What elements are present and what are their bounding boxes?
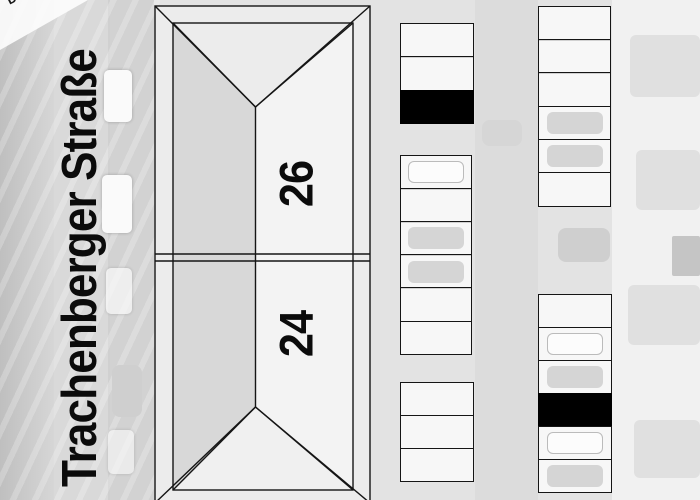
parked-car-shape	[112, 365, 142, 417]
parking-stall	[400, 188, 472, 223]
parking-stall	[400, 321, 472, 356]
hip-line	[173, 407, 256, 490]
stall-row-b-bottom	[538, 294, 612, 493]
roof-south-hip	[173, 407, 353, 490]
parking-stall	[538, 327, 612, 361]
parking-stall-occupied	[400, 90, 474, 125]
roof-west-plane	[173, 23, 256, 490]
hip-line	[256, 6, 371, 107]
aerial-road-middle	[475, 0, 538, 500]
parking-stall	[400, 23, 474, 58]
car-shape	[547, 465, 603, 487]
parked-car-shape	[108, 430, 134, 474]
hip-line	[256, 407, 371, 500]
car-shape	[408, 227, 464, 249]
hip-line	[256, 23, 354, 107]
corner-street-label: Dra	[4, 0, 31, 7]
car-shape	[547, 432, 603, 454]
hip-line	[155, 6, 256, 107]
parking-stall	[538, 72, 611, 107]
car-shape	[547, 333, 603, 355]
parking-stall	[538, 39, 611, 74]
parking-stall	[400, 287, 472, 322]
parking-stall	[400, 382, 474, 416]
parking-stall	[538, 294, 612, 328]
house-number-26: 26	[269, 161, 324, 207]
roof-eaves-area	[155, 6, 370, 500]
parking-stall-occupied	[538, 393, 612, 427]
house-roof-shape	[628, 285, 700, 345]
building-inner-outline	[173, 23, 353, 490]
stall-row-a-middle	[400, 155, 472, 355]
parking-stall	[538, 459, 612, 493]
building-outer-outline	[155, 6, 370, 500]
car-shape	[408, 261, 464, 283]
roof-north-hip	[173, 23, 353, 107]
parking-stall	[538, 426, 612, 460]
house-roof-shape	[634, 420, 700, 478]
stall-row-a-top	[400, 23, 474, 124]
street-name-label: Trachenberger Straße	[52, 49, 108, 487]
stall-row-b-top	[538, 6, 611, 207]
parking-stall	[538, 6, 611, 41]
parked-car-shape	[106, 268, 132, 314]
car-shape	[547, 145, 603, 167]
aerial-street-left	[0, 0, 54, 500]
parking-stall	[400, 155, 472, 190]
house-roof-shape	[630, 35, 700, 97]
car-shape	[408, 161, 464, 183]
hip-line	[155, 407, 256, 500]
house-number-24: 24	[269, 311, 324, 357]
parking-stall	[400, 221, 472, 256]
driving-car-shape	[482, 120, 522, 146]
parking-stall	[400, 448, 474, 482]
car-shape	[547, 366, 603, 388]
parking-stall	[538, 172, 611, 207]
dark-roof-shape	[672, 236, 700, 276]
parked-car-shape	[104, 70, 132, 122]
hip-line	[256, 407, 354, 490]
house-roof-shape	[636, 150, 700, 210]
aerial-right-margin	[612, 0, 700, 500]
site-plan-canvas: Dra 26 24 Trachenberger Straße	[0, 0, 700, 500]
parking-stall	[400, 56, 474, 91]
car-shape	[547, 112, 603, 134]
driving-car-shape	[558, 228, 610, 262]
parking-stall	[400, 415, 474, 449]
parking-stall	[538, 139, 611, 174]
hip-line	[173, 23, 256, 107]
parking-stall	[400, 254, 472, 289]
aerial-parking-lane	[108, 0, 154, 500]
stall-row-a-bottom	[400, 382, 474, 482]
roof-east-plane	[256, 23, 354, 490]
parking-stall	[538, 106, 611, 141]
parking-stall	[538, 360, 612, 394]
corner-wedge	[0, 0, 88, 50]
